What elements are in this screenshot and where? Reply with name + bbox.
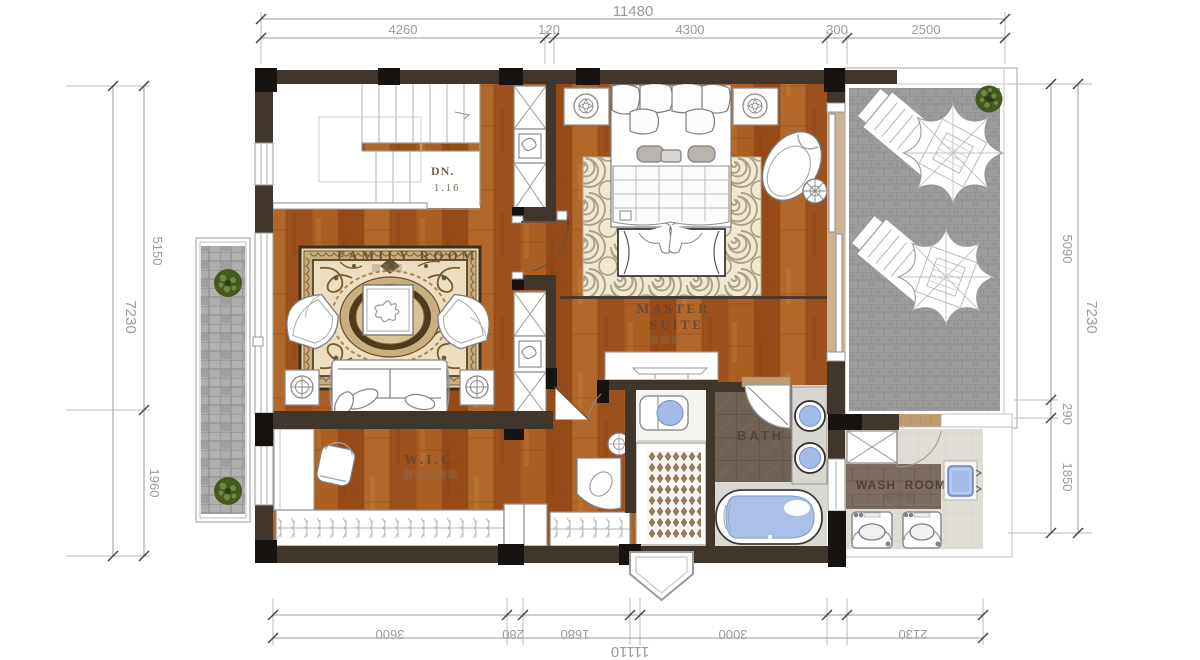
svg-text:WASH ROOM: WASH ROOM <box>856 478 946 492</box>
svg-text:3600: 3600 <box>376 627 405 642</box>
svg-text:2130: 2130 <box>899 627 928 642</box>
svg-text:SUITE: SUITE <box>650 317 704 332</box>
svg-text:MASTER: MASTER <box>637 301 711 316</box>
svg-text:11480: 11480 <box>613 3 654 20</box>
svg-text:7230: 7230 <box>122 300 139 333</box>
svg-text:4260: 4260 <box>389 22 418 37</box>
svg-text:BATH: BATH <box>737 428 784 443</box>
svg-text:W.I.C.: W.I.C. <box>404 453 461 468</box>
svg-text:1680: 1680 <box>561 627 590 642</box>
svg-text:1850: 1850 <box>1060 463 1075 492</box>
svg-text:300: 300 <box>826 22 848 37</box>
svg-text:1960: 1960 <box>147 469 162 498</box>
svg-text:FAMILY ROOM: FAMILY ROOM <box>337 248 478 263</box>
svg-text:290: 290 <box>1060 403 1075 425</box>
svg-text:7230: 7230 <box>1083 300 1100 333</box>
svg-text:280: 280 <box>502 627 524 642</box>
svg-text:11110: 11110 <box>611 643 649 660</box>
svg-text:4300: 4300 <box>676 22 705 37</box>
svg-text:1.16: 1.16 <box>434 183 460 194</box>
svg-text:2500: 2500 <box>912 22 941 37</box>
svg-text:3000: 3000 <box>719 627 748 642</box>
svg-text:DN.: DN. <box>431 164 454 178</box>
svg-text:5090: 5090 <box>1060 235 1075 264</box>
svg-text:5150: 5150 <box>150 237 165 266</box>
svg-text:120: 120 <box>538 22 560 37</box>
